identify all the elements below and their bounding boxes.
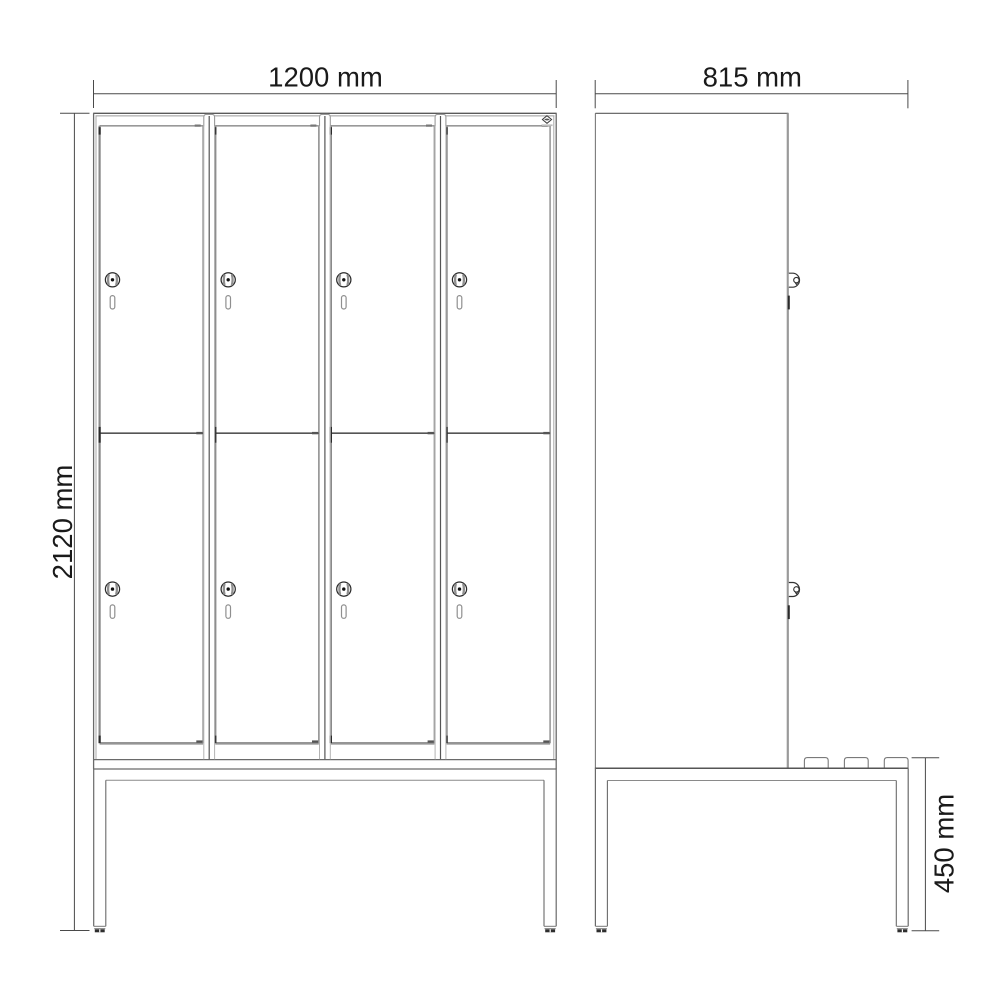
svg-text:450 mm: 450 mm [929,794,960,893]
svg-text:815 mm: 815 mm [703,61,802,92]
svg-text:2120 mm: 2120 mm [47,465,78,580]
svg-text:1200 mm: 1200 mm [268,61,383,92]
